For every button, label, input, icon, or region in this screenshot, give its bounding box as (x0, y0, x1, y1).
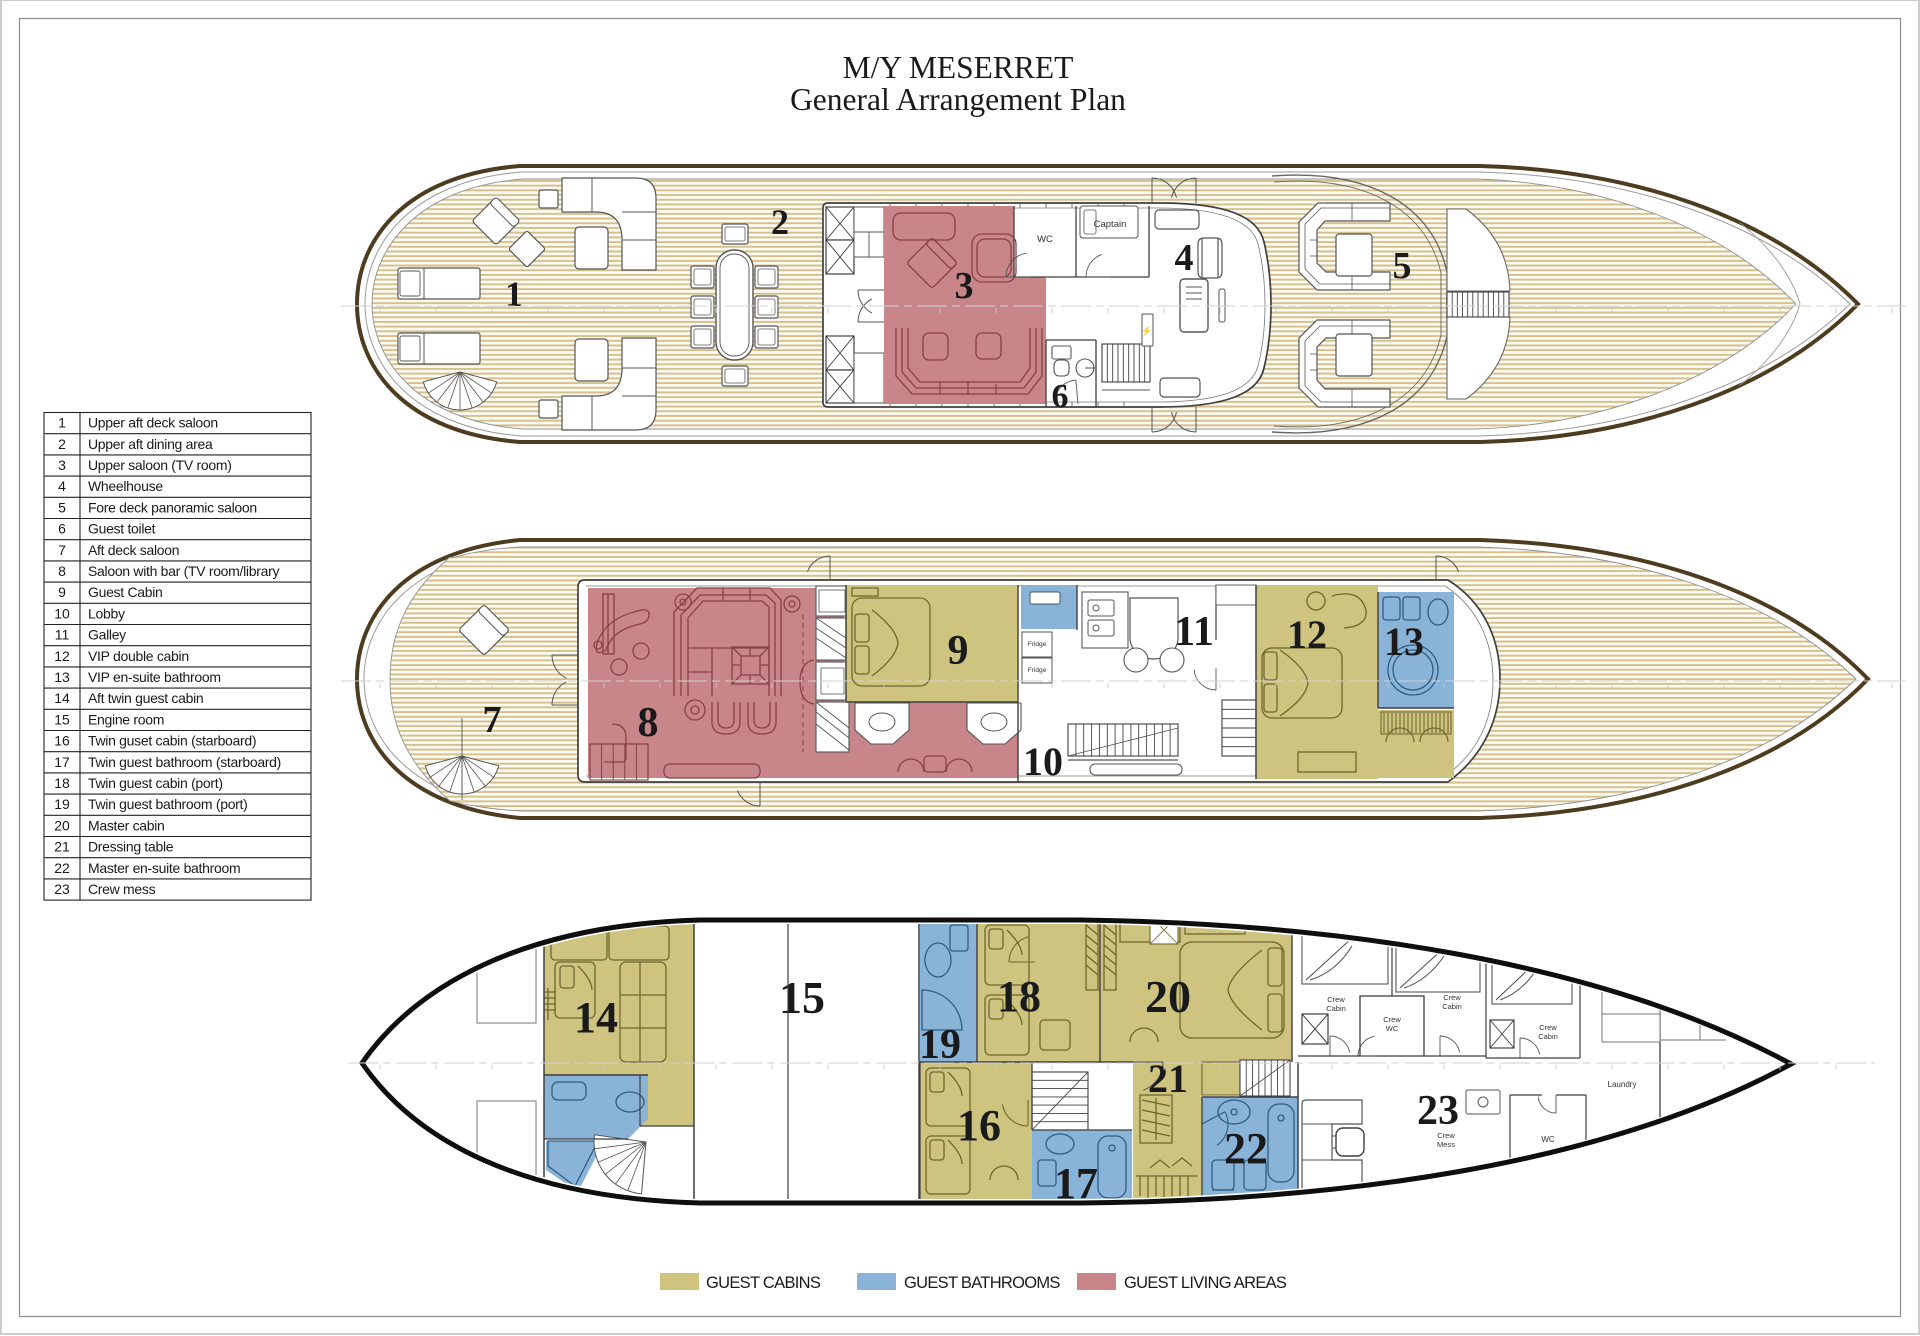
svg-text:23: 23 (1417, 1088, 1459, 1134)
svg-text:10: 10 (1023, 739, 1063, 784)
svg-text:Captain: Captain (1094, 219, 1127, 230)
svg-text:Lobby: Lobby (88, 605, 125, 621)
svg-text:8: 8 (58, 563, 66, 579)
svg-text:Twin guest bathroom (port): Twin guest bathroom (port) (88, 796, 248, 812)
svg-text:2: 2 (771, 202, 789, 242)
svg-text:20: 20 (54, 817, 70, 833)
svg-text:14: 14 (574, 993, 618, 1042)
svg-text:Crew: Crew (1383, 1015, 1401, 1024)
svg-text:17: 17 (54, 754, 70, 770)
svg-text:Aft deck saloon: Aft deck saloon (88, 542, 179, 558)
svg-text:Master en-suite bathroom: Master en-suite bathroom (88, 860, 240, 876)
svg-text:Fridge: Fridge (1028, 667, 1047, 674)
svg-text:WC: WC (1541, 1135, 1555, 1144)
svg-text:Fridge: Fridge (1028, 641, 1047, 648)
svg-text:14: 14 (54, 690, 70, 706)
svg-text:Upper aft dining area: Upper aft dining area (88, 436, 213, 452)
svg-text:15: 15 (779, 972, 825, 1023)
svg-text:Engine room: Engine room (88, 711, 164, 727)
svg-text:10: 10 (54, 605, 70, 621)
svg-text:Aft twin guest cabin: Aft twin guest cabin (88, 690, 203, 706)
svg-text:Twin guest bathroom (starboard: Twin guest bathroom (starboard) (88, 754, 281, 770)
svg-text:GUEST CABINS: GUEST CABINS (706, 1274, 821, 1292)
svg-text:7: 7 (58, 542, 66, 558)
svg-text:WC: WC (1037, 234, 1053, 245)
svg-text:General Arrangement Plan: General Arrangement Plan (790, 82, 1126, 117)
svg-text:Crew: Crew (1443, 993, 1461, 1002)
svg-text:16: 16 (957, 1101, 1001, 1150)
svg-text:22: 22 (54, 860, 70, 876)
svg-text:Mess: Mess (1437, 1140, 1455, 1149)
svg-text:Wheelhouse: Wheelhouse (88, 478, 163, 494)
svg-text:Laundry: Laundry (1608, 1080, 1637, 1089)
svg-text:GUEST LIVING AREAS: GUEST LIVING AREAS (1124, 1274, 1287, 1292)
svg-text:Cabin: Cabin (1326, 1004, 1346, 1013)
svg-text:1: 1 (505, 274, 523, 314)
svg-text:1: 1 (58, 415, 66, 431)
svg-text:Master cabin: Master cabin (88, 817, 165, 833)
svg-text:Galley: Galley (88, 627, 126, 643)
svg-text:21: 21 (54, 839, 70, 855)
svg-text:12: 12 (1287, 612, 1327, 657)
svg-text:Saloon with bar (TV room/libra: Saloon with bar (TV room/library (88, 563, 279, 579)
svg-text:13: 13 (54, 669, 70, 685)
svg-text:Cabin: Cabin (1538, 1032, 1558, 1041)
svg-text:22: 22 (1224, 1124, 1268, 1173)
svg-text:Guest Cabin: Guest Cabin (88, 584, 163, 600)
svg-text:Crew: Crew (1437, 1131, 1455, 1140)
svg-text:11: 11 (55, 627, 70, 643)
svg-text:VIP double cabin: VIP double cabin (88, 648, 189, 664)
svg-text:6: 6 (58, 521, 66, 537)
svg-text:18: 18 (997, 972, 1041, 1021)
svg-text:⚡: ⚡ (1141, 325, 1152, 337)
svg-text:Twin guset cabin (starboard): Twin guset cabin (starboard) (88, 733, 256, 749)
svg-text:5: 5 (1393, 245, 1412, 287)
svg-text:15: 15 (54, 711, 70, 727)
svg-text:19: 19 (919, 1022, 961, 1068)
svg-text:4: 4 (1175, 237, 1194, 279)
svg-text:3: 3 (58, 457, 66, 473)
svg-text:VIP en-suite bathroom: VIP en-suite bathroom (88, 669, 221, 685)
svg-text:Dressing table: Dressing table (88, 839, 174, 855)
svg-text:16: 16 (54, 733, 70, 749)
svg-text:5: 5 (58, 499, 66, 515)
svg-text:18: 18 (54, 775, 70, 791)
svg-text:6: 6 (1052, 378, 1069, 415)
svg-text:12: 12 (54, 648, 70, 664)
svg-text:Upper saloon (TV room): Upper saloon (TV room) (88, 457, 232, 473)
svg-text:WC: WC (1386, 1024, 1399, 1033)
svg-text:M/Y MESERRET: M/Y MESERRET (843, 50, 1074, 85)
svg-text:13: 13 (1384, 619, 1424, 664)
svg-text:23: 23 (54, 881, 70, 897)
svg-text:4: 4 (58, 478, 66, 494)
svg-text:Crew mess: Crew mess (88, 881, 156, 897)
svg-text:3: 3 (955, 265, 974, 307)
svg-text:Guest toilet: Guest toilet (88, 521, 156, 537)
svg-text:Crew: Crew (1539, 1023, 1557, 1032)
svg-text:Cabin: Cabin (1442, 1002, 1462, 1011)
svg-text:7: 7 (483, 699, 502, 741)
svg-text:2: 2 (58, 436, 66, 452)
svg-text:20: 20 (1145, 971, 1191, 1022)
svg-text:19: 19 (54, 796, 70, 812)
svg-text:9: 9 (58, 584, 66, 600)
svg-text:Crew: Crew (1327, 995, 1345, 1004)
svg-text:GUEST BATHROOMS: GUEST BATHROOMS (904, 1274, 1060, 1292)
svg-text:Upper aft deck saloon: Upper aft deck saloon (88, 415, 218, 431)
svg-text:8: 8 (638, 700, 659, 746)
svg-text:11: 11 (1174, 609, 1214, 655)
svg-text:9: 9 (948, 628, 969, 674)
svg-text:Twin guest cabin (port): Twin guest cabin (port) (88, 775, 223, 791)
svg-text:Fore deck panoramic saloon: Fore deck panoramic saloon (88, 499, 257, 515)
